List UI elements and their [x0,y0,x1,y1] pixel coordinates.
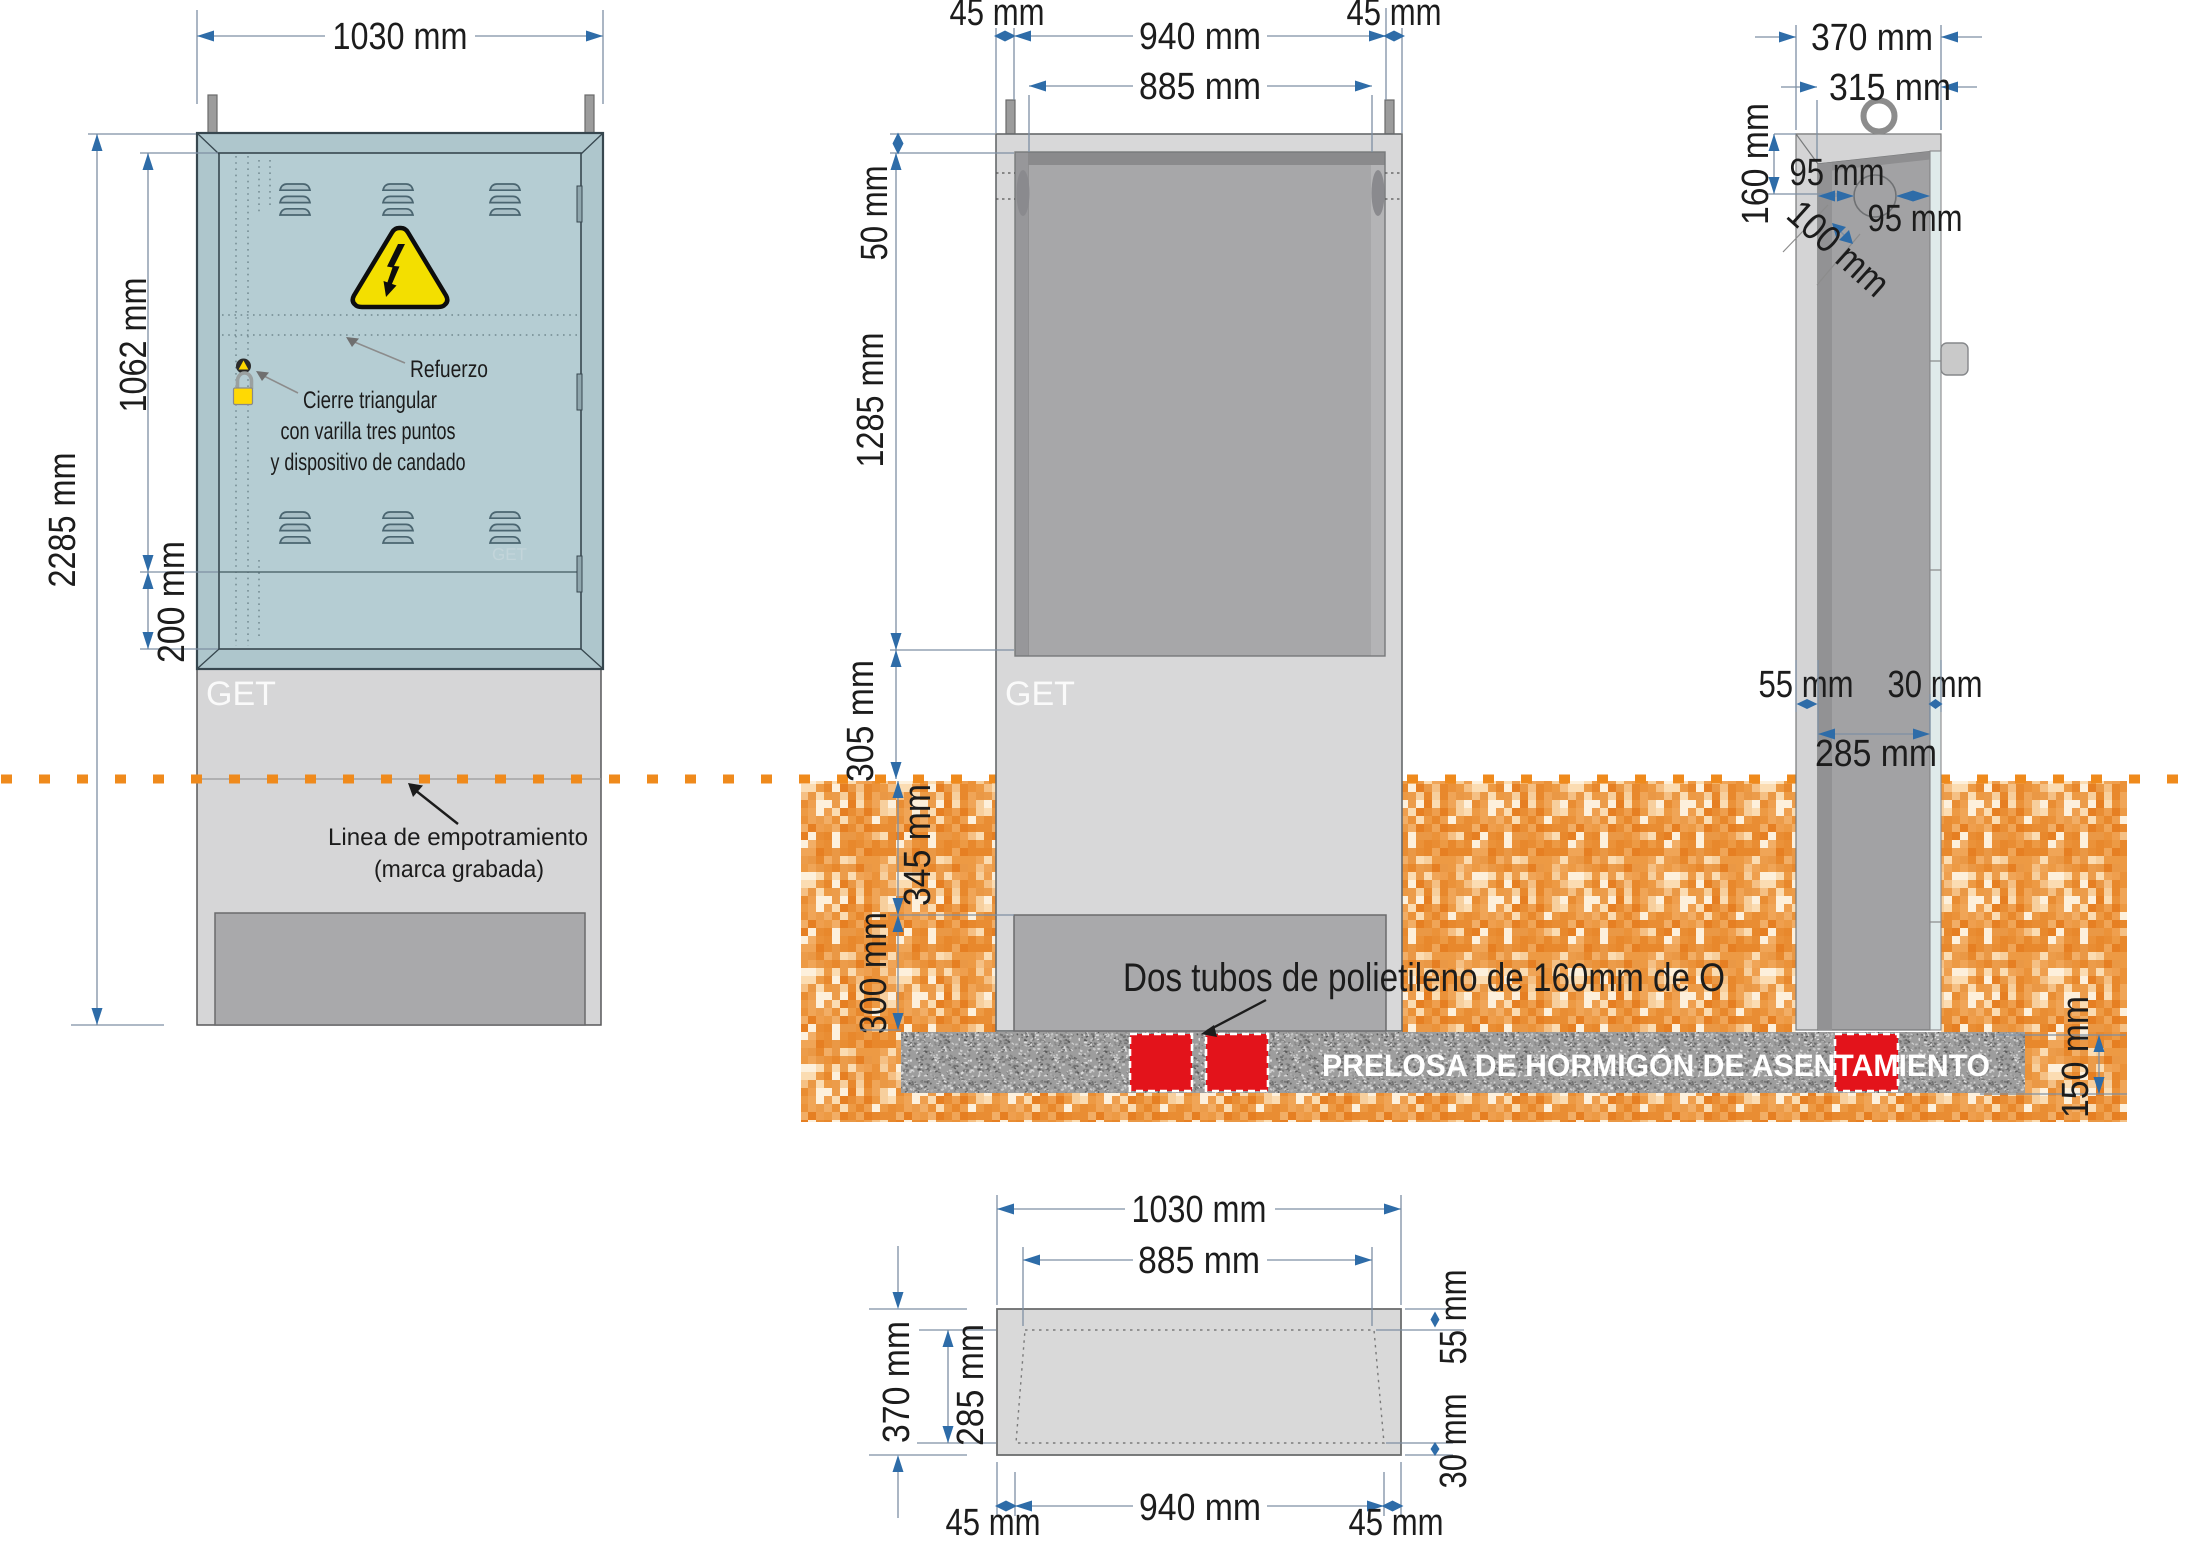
svg-text:160 mm: 160 mm [1735,103,1777,225]
svg-text:885 mm: 885 mm [1139,66,1261,108]
svg-text:con varilla tres puntos: con varilla tres puntos [281,418,456,445]
svg-text:1030 mm: 1030 mm [333,16,468,58]
svg-text:45 mm: 45 mm [1349,1502,1444,1539]
svg-text:305 mm: 305 mm [840,660,882,782]
svg-text:940 mm: 940 mm [1139,16,1261,58]
svg-text:95 mm: 95 mm [1790,152,1885,194]
svg-text:45 mm: 45 mm [1347,0,1442,34]
svg-text:200 mm: 200 mm [151,541,193,663]
svg-text:Refuerzo: Refuerzo [410,356,488,383]
svg-text:1285 mm: 1285 mm [850,333,892,468]
svg-text:(marca grabada): (marca grabada) [374,856,544,883]
svg-text:1062 mm: 1062 mm [113,278,155,413]
svg-text:940 mm: 940 mm [1139,1487,1261,1529]
svg-text:2285 mm: 2285 mm [42,453,84,588]
svg-text:GET: GET [206,675,276,713]
svg-text:45 mm: 45 mm [946,1502,1041,1539]
svg-text:370 mm: 370 mm [1811,17,1933,59]
svg-text:Cierre triangular: Cierre triangular [303,387,437,414]
svg-text:GET: GET [492,545,527,564]
svg-text:Dos tubos de polietileno de 16: Dos tubos de polietileno de 160mm de O [1123,956,1725,1000]
svg-text:285 mm: 285 mm [1815,733,1937,775]
svg-text:300 mm: 300 mm [853,912,895,1034]
svg-text:370 mm: 370 mm [876,1321,918,1443]
svg-text:95 mm: 95 mm [1868,198,1963,240]
svg-text:885 mm: 885 mm [1138,1240,1260,1282]
svg-text:55 mm: 55 mm [1433,1270,1475,1365]
svg-text:1030 mm: 1030 mm [1132,1189,1267,1231]
svg-text:315 mm: 315 mm [1829,67,1951,109]
svg-text:GET: GET [1005,675,1075,713]
svg-text:30 mm: 30 mm [1433,1394,1475,1489]
svg-text:PRELOSA DE HORMIGÓN DE ASENTAM: PRELOSA DE HORMIGÓN DE ASENTAMIENTO [1322,1048,1990,1083]
svg-text:y dispositivo de candado: y dispositivo de candado [271,449,466,476]
svg-text:285 mm: 285 mm [950,1324,992,1446]
svg-text:50 mm: 50 mm [854,166,896,261]
svg-text:150 mm: 150 mm [2055,996,2097,1118]
svg-text:Linea de empotramiento: Linea de empotramiento [328,824,588,851]
svg-text:345 mm: 345 mm [897,784,939,906]
svg-text:45 mm: 45 mm [950,0,1045,34]
